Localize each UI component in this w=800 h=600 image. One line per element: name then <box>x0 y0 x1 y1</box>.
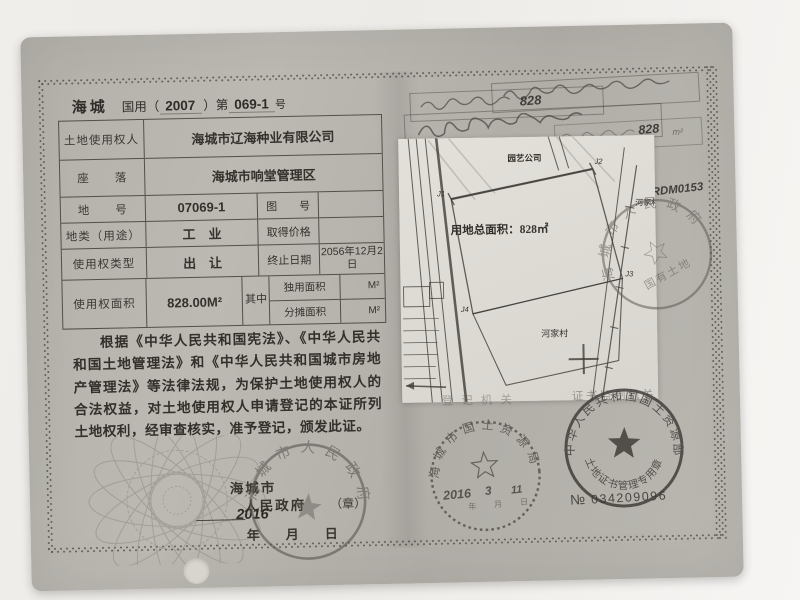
table-row: 使用权面积 828.00M² 其中 独用面积 M² 分摊面积 M² <box>62 273 385 329</box>
exclusive-area-unit: M² <box>339 274 384 298</box>
expiry-date-value: 2056年12月2日 <box>319 243 384 274</box>
shared-area-row: 分摊面积 M² <box>270 297 385 324</box>
map-area-text: 用地总面积：828㎡ <box>450 222 549 238</box>
location-value: 海城市响堂管理区 <box>144 154 383 195</box>
decorative-border-left <box>37 79 54 554</box>
row-label2: 图 号 <box>257 192 318 218</box>
shared-area-unit: M² <box>340 298 385 322</box>
cert-type-mid: ）第 <box>203 98 228 113</box>
row-label: 使用权面积 <box>62 279 146 329</box>
certificate-photo: 海城国用（2007）第069-1号 土地使用权人 海城市辽海种业有限公司 座 落… <box>0 0 800 600</box>
certificate-number-line: 海城国用（2007）第069-1号 <box>72 90 382 117</box>
land-info-table: 土地使用权人 海城市辽海种业有限公司 座 落 海城市响堂管理区 地 号 0706… <box>58 114 386 330</box>
certificate-spread: 海城国用（2007）第069-1号 土地使用权人 海城市辽海种业有限公司 座 落… <box>20 23 743 592</box>
cert-type-prefix: 国用（ <box>122 100 160 115</box>
handwritten-area-unit: m² <box>672 127 683 137</box>
svg-text:海城市国土资源局: 海城市国土资源局 <box>421 413 544 481</box>
row-label: 土地使用权人 <box>59 120 144 160</box>
cert-year: 2007 <box>159 98 201 115</box>
row-label: 地 号 <box>61 196 145 223</box>
decorative-border-right <box>705 65 727 540</box>
land-bureau-stamp: 海城市国土资源局 2016 3 11 年 月 日 <box>420 411 550 541</box>
row-label2: 终止日期 <box>258 244 319 275</box>
sub-area-cells: 独用面积 M² 分摊面积 M² <box>268 274 385 324</box>
tenure-type-value: 出 让 <box>145 246 258 278</box>
map-company-label: 园艺公司 <box>507 153 541 164</box>
star-icon <box>608 427 641 458</box>
table-row: 土地使用权人 海城市辽海种业有限公司 <box>59 115 382 160</box>
land-user-value: 海城市辽海种业有限公司 <box>143 115 382 158</box>
page-notch <box>183 558 210 585</box>
price-value <box>318 217 383 243</box>
map-village-label: 河家村 <box>541 327 568 338</box>
map-number-value <box>318 191 383 217</box>
serial-number: 034209096 <box>591 488 668 506</box>
serial-label: № <box>570 491 586 508</box>
cert-number-suffix: 号 <box>275 99 286 111</box>
region-name: 海城 <box>72 99 108 117</box>
cert-serial: 069-1 <box>228 96 275 113</box>
parcel-number-value: 07069-1 <box>144 194 257 221</box>
city-stamp-inner-text: 国有土地 <box>642 255 694 293</box>
handwriting-scribble <box>418 91 514 115</box>
stamp-date-day: 11 <box>510 484 522 497</box>
row-label: 地类（用途） <box>61 222 145 249</box>
exclusive-area-row: 独用面积 M² <box>269 274 384 300</box>
of-which-label: 其中 <box>242 276 270 325</box>
area-value: 828.00M² <box>146 277 243 327</box>
stamp-day-label: 日 <box>520 497 529 507</box>
map-point-j4: J4 <box>460 305 469 314</box>
land-use-value: 工 业 <box>145 220 258 247</box>
shared-area-label: 分摊面积 <box>270 304 340 320</box>
map-point-j2: J2 <box>593 157 603 166</box>
table-row: 座 落 海城市响堂管理区 <box>60 153 383 197</box>
row-label: 使用权类型 <box>62 248 146 280</box>
star-icon <box>471 451 499 478</box>
stamp-date-year: 2016 <box>442 486 473 503</box>
registration-organ-label: 登记机关 <box>442 391 520 409</box>
exclusive-area-label: 独用面积 <box>270 279 340 295</box>
row-label2: 取得价格 <box>258 218 319 244</box>
legal-statement: 根据《中华人民共和国宪法》、《中华人民共和国土地管理法》和《中华人民共和国城市房… <box>72 326 382 444</box>
star-icon <box>293 492 323 520</box>
government-round-stamp: 海城市人民政府 <box>237 430 380 573</box>
stamp-date-month: 3 <box>484 483 492 498</box>
stamp-month-label: 月 <box>494 499 503 509</box>
bureau-stamp-ring-text: 海城市国土资源局 <box>421 413 544 481</box>
star-icon <box>640 237 670 267</box>
handwritten-area-box: 828 <box>519 92 542 109</box>
map-point-j1: J1 <box>436 189 445 198</box>
stamp-year-label: 年 <box>468 501 477 512</box>
row-label: 座 落 <box>60 159 145 197</box>
